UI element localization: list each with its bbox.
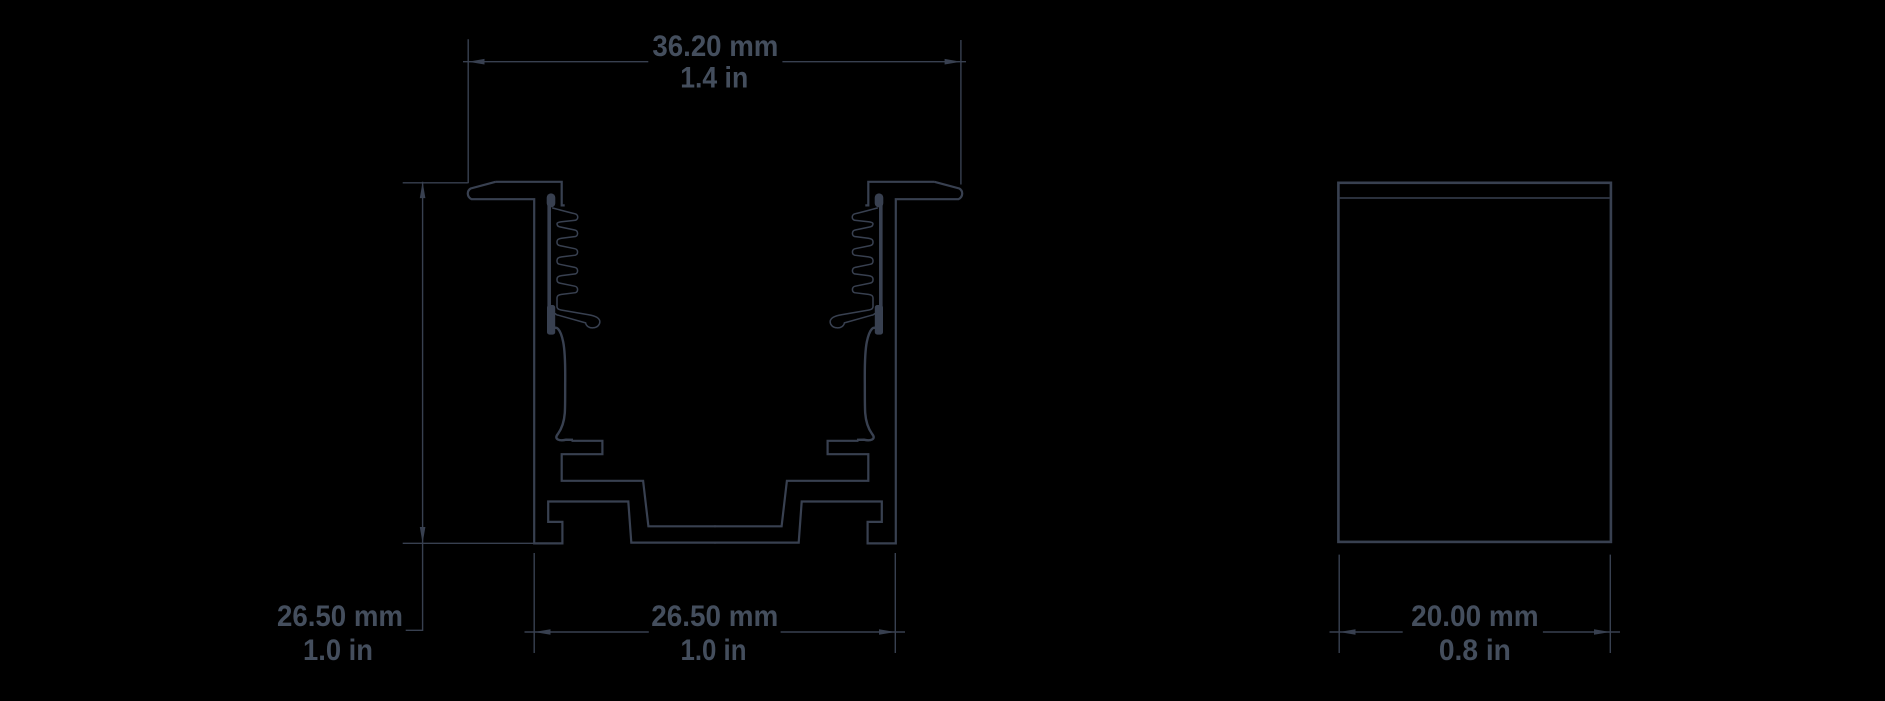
svg-text:1.0 in: 1.0 in [303,634,373,667]
svg-text:26.50 mm: 26.50 mm [277,600,403,633]
svg-text:36.20 mm: 36.20 mm [652,30,778,63]
svg-text:1.0 in: 1.0 in [681,634,747,667]
svg-text:26.50 mm: 26.50 mm [651,600,778,633]
svg-text:20.00 mm: 20.00 mm [1411,600,1539,633]
svg-text:0.8 in: 0.8 in [1439,634,1511,667]
svg-text:1.4 in: 1.4 in [680,62,748,95]
